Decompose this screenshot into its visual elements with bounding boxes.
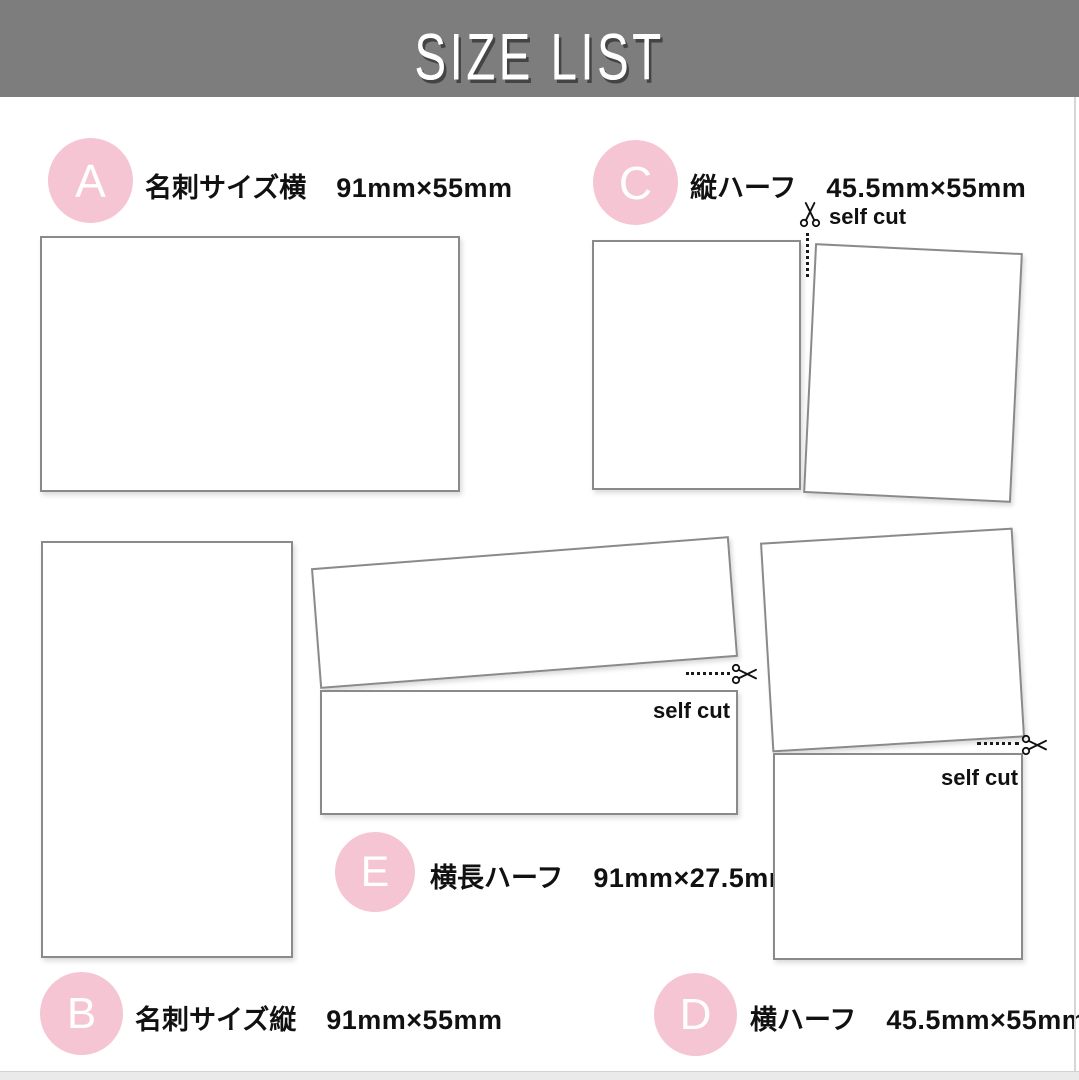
item-d-letter: D [680,990,712,1040]
item-e-label: 横長ハーフ 91mm×27.5mm [430,856,793,895]
item-d-label: 横ハーフ 45.5mm×55mm [750,998,1079,1037]
item-d-name: 横ハーフ [750,998,856,1037]
item-c-label: 縦ハーフ 45.5mm×55mm [690,166,1026,205]
item-a-name: 名刺サイズ横 [145,166,306,205]
cut-line-horizontal [686,672,730,675]
page-bottom-strip [0,1071,1079,1080]
cut-line-vertical [806,233,809,277]
item-c-name: 縦ハーフ [690,166,796,205]
item-a-letter: A [75,154,106,208]
self-cut-label: self cut [653,698,730,724]
item-b-badge: B [40,972,123,1055]
scissors-icon [798,200,822,228]
item-c-card-right [803,243,1023,503]
item-b-letter: B [67,989,96,1039]
item-e-name: 横長ハーフ [430,856,563,895]
page-edge-line [1074,97,1076,1071]
item-c-badge: C [593,140,678,225]
item-a-card [40,236,460,492]
item-a-size: 91mm×55mm [336,173,512,204]
item-a-badge: A [48,138,133,223]
item-b-name: 名刺サイズ縦 [135,998,296,1037]
item-d-size: 45.5mm×55mm [886,1005,1079,1036]
size-list-infographic: SIZE LIST A 名刺サイズ横 91mm×55mm C 縦ハーフ 45.5… [0,0,1079,1080]
item-c-card-left [592,240,801,490]
item-b-label: 名刺サイズ縦 91mm×55mm [135,998,503,1037]
scissors-icon [731,662,759,686]
item-c-letter: C [619,156,652,210]
scissors-icon [1021,733,1049,757]
item-d-card-top [760,528,1025,753]
item-e-letter: E [361,848,390,897]
self-cut-label: self cut [941,765,1018,791]
page-title: SIZE LIST [81,18,998,95]
cut-line-horizontal [977,742,1019,745]
item-e-card-top [311,536,738,689]
item-b-size: 91mm×55mm [326,1005,502,1036]
header-banner: SIZE LIST [0,0,1079,97]
item-a-label: 名刺サイズ横 91mm×55mm [145,166,513,205]
item-b-card [41,541,293,958]
item-c-size: 45.5mm×55mm [826,173,1026,204]
item-e-badge: E [335,832,415,912]
item-e-size: 91mm×27.5mm [593,863,793,894]
self-cut-label: self cut [829,204,906,230]
item-d-badge: D [654,973,737,1056]
